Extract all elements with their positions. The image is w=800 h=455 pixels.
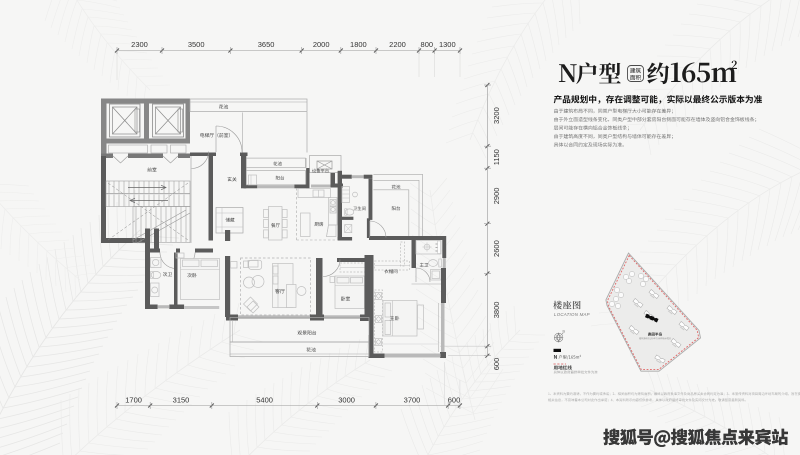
svg-text:1700: 1700 <box>125 396 142 405</box>
svg-text:2200: 2200 <box>389 40 406 49</box>
svg-text:3500: 3500 <box>188 40 205 49</box>
svg-text:2300: 2300 <box>131 40 148 49</box>
svg-text:2000: 2000 <box>313 40 330 49</box>
svg-text:1800: 1800 <box>350 40 367 49</box>
svg-text:3200: 3200 <box>492 107 501 124</box>
svg-text:2600: 2600 <box>492 240 501 257</box>
svg-text:3150: 3150 <box>173 396 190 405</box>
svg-text:600: 600 <box>448 396 461 405</box>
svg-text:3650: 3650 <box>258 40 275 49</box>
svg-text:800: 800 <box>421 40 434 49</box>
svg-text:600: 600 <box>492 358 501 371</box>
svg-text:3800: 3800 <box>492 302 501 319</box>
svg-text:3700: 3700 <box>404 396 421 405</box>
svg-text:5400: 5400 <box>256 396 273 405</box>
svg-text:LOCATION MAP: LOCATION MAP <box>554 312 590 317</box>
svg-text:2900: 2900 <box>492 188 501 205</box>
svg-text:1300: 1300 <box>439 40 456 49</box>
svg-text:3000: 3000 <box>338 396 355 405</box>
svg-text:1150: 1150 <box>492 149 501 165</box>
